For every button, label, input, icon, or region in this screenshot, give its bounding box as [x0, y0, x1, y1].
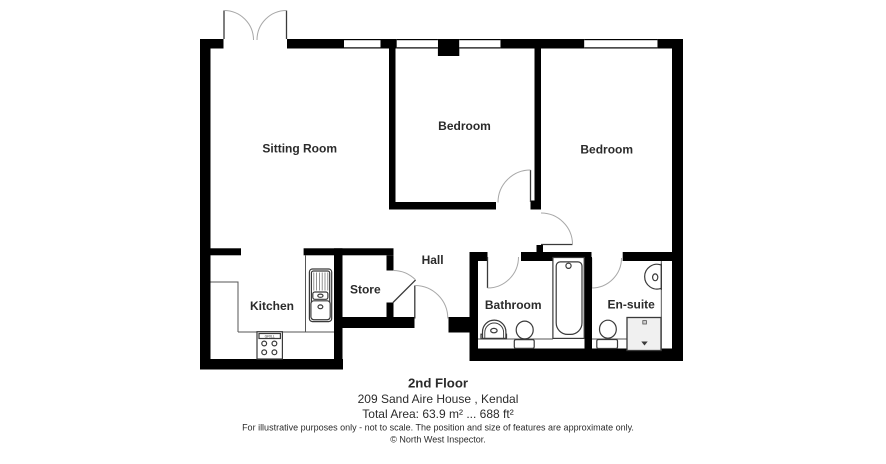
- svg-text:Total Area: 63.9 m² ... 688 ft: Total Area: 63.9 m² ... 688 ft²: [362, 407, 513, 421]
- svg-text:Bedroom: Bedroom: [580, 143, 633, 157]
- svg-text:GRILL: GRILL: [265, 335, 275, 339]
- svg-text:Kitchen: Kitchen: [250, 299, 294, 313]
- svg-text:2nd Floor: 2nd Floor: [408, 376, 468, 391]
- svg-text:209 Sand Aire House , Kendal: 209 Sand Aire House , Kendal: [358, 392, 519, 406]
- svg-text:Hall: Hall: [422, 253, 444, 267]
- svg-text:© North West Inspector.: © North West Inspector.: [390, 435, 486, 445]
- svg-text:For illustrative purposes only: For illustrative purposes only - not to …: [242, 422, 634, 432]
- svg-text:Bathroom: Bathroom: [485, 298, 542, 312]
- svg-text:Bedroom: Bedroom: [438, 119, 491, 133]
- svg-text:En-suite: En-suite: [608, 297, 656, 311]
- svg-text:Store: Store: [350, 283, 381, 297]
- svg-text:Sitting Room: Sitting Room: [262, 142, 337, 156]
